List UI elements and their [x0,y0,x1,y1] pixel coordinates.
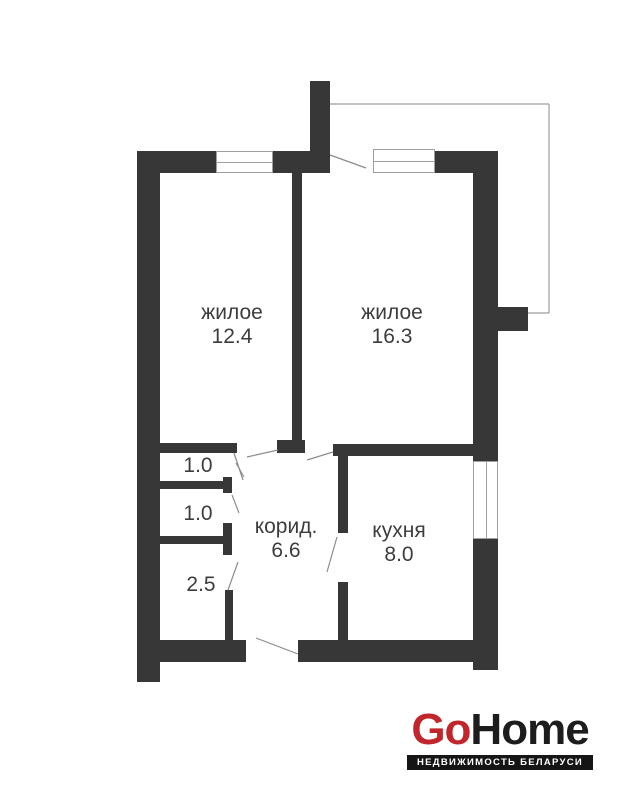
door-swing-store3-door [228,562,238,590]
gohome-logo: GoHome НЕДВИЖИМОСТЬ БЕЛАРУСИ [407,706,593,770]
room-area: 8.0 [372,543,425,567]
room-name: корид. [255,515,318,539]
floorplan-drawing [0,0,640,800]
room-area: 12.4 [201,325,263,349]
room-label-living1: жилое 12.4 [201,301,263,349]
room-area: 1.0 [183,502,212,526]
logo-go-part: Go [411,705,470,754]
room-label-living2: жилое 16.3 [361,301,423,349]
door-swing-living1-door-b [247,450,278,457]
room-name: кухня [372,519,425,543]
thin-lines-overlay [0,0,640,800]
room-label-store3: 2.5 [186,573,215,597]
room-label-store1: 1.0 [183,454,212,478]
door-swing-store1-door [236,463,244,477]
room-area: 16.3 [361,325,423,349]
floorplan-canvas: жилое 12.4 жилое 16.3 корид. 6.6 кухня 8… [0,0,640,800]
door-swing-balcony-door [330,155,366,168]
room-area: 1.0 [183,454,212,478]
room-area: 2.5 [186,573,215,597]
door-swing-entrance-door [256,638,298,654]
gohome-tagline: НЕДВИЖИМОСТЬ БЕЛАРУСИ [407,755,593,770]
door-swing-living2-door [307,452,333,460]
logo-home-part: Home [470,705,588,754]
room-name: жилое [201,301,263,325]
room-label-kitchen: кухня 8.0 [372,519,425,567]
door-swing-kitchen-door [327,537,337,572]
gohome-logo-text: GoHome [407,706,593,754]
room-name: жилое [361,301,423,325]
door-swing-store2-door [232,495,239,513]
room-area: 6.6 [255,539,318,563]
room-label-store2: 1.0 [183,502,212,526]
room-label-corridor: корид. 6.6 [255,515,318,563]
